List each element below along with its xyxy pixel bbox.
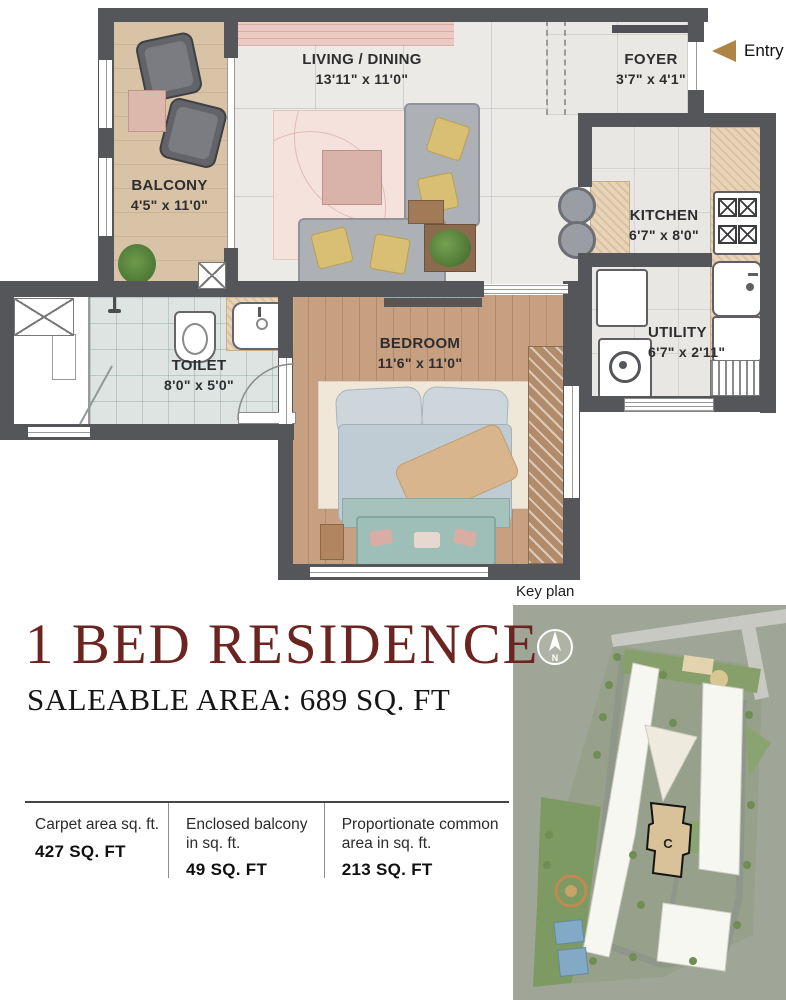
wall — [0, 281, 14, 440]
window — [28, 427, 90, 437]
duct-box — [198, 262, 226, 289]
area-value: 49 SQ. FT — [186, 860, 316, 880]
wall — [578, 267, 592, 410]
room-label-living: LIVING / DINING 13'11" x 11'0" — [262, 50, 462, 88]
room-dims: 6'7" x 2'11" — [648, 343, 748, 361]
room-name: TOILET — [140, 356, 258, 376]
bed-bench — [356, 516, 496, 566]
toilet-door-opening — [279, 358, 292, 424]
entry-label: Entry — [744, 41, 784, 61]
site-map: C N — [513, 605, 786, 1000]
wall — [578, 113, 776, 127]
room-label-kitchen: KITCHEN 6'7" x 8'0" — [606, 206, 722, 244]
room-dims: 3'7" x 4'1" — [592, 70, 710, 88]
floor-plan-page: LIVING / DINING 13'11" x 11'0" FOYER 3'7… — [0, 0, 786, 1000]
wall — [278, 281, 293, 580]
side-table — [408, 200, 444, 224]
area-col-common: Proportionate common area in sq. ft. 213… — [324, 803, 509, 878]
room-dims: 4'5" x 11'0" — [112, 196, 227, 214]
room-label-toilet: TOILET 8'0" x 5'0" — [140, 356, 258, 394]
area-col-balcony: Enclosed balcony in sq. ft. 49 SQ. FT — [168, 803, 324, 878]
wall — [224, 8, 238, 58]
wall — [578, 127, 592, 187]
room-label-foyer: FOYER 3'7" x 4'1" — [592, 50, 710, 88]
page-title: 1 BED RESIDENCE — [25, 612, 540, 677]
duct-shaft-arm — [52, 334, 76, 380]
area-value: 213 SQ. FT — [342, 860, 501, 880]
entry-arrow-icon — [712, 40, 736, 62]
highlighted-building-label: C — [663, 836, 673, 851]
room-dims: 13'11" x 11'0" — [262, 70, 462, 88]
window — [99, 158, 112, 236]
shoe-cabinet — [612, 25, 688, 33]
room-name: BEDROOM — [336, 334, 504, 354]
stool — [558, 187, 596, 225]
saleable-area-subtitle: SALEABLE AREA: 689 SQ. FT — [27, 682, 450, 718]
living-deck-strip — [238, 22, 454, 46]
area-col-carpet: Carpet area sq. ft. 427 SQ. FT — [25, 803, 168, 878]
window — [99, 60, 112, 128]
wardrobe — [528, 346, 565, 564]
tv-console — [384, 298, 482, 307]
window — [310, 567, 488, 577]
balcony-sliding-door — [227, 58, 235, 248]
room-label-bedroom: BEDROOM 11'6" x 11'0" — [336, 334, 504, 372]
plant-icon — [118, 244, 156, 284]
wall — [0, 281, 484, 297]
room-name: KITCHEN — [606, 206, 722, 226]
bedside-table — [320, 524, 344, 560]
duct-shaft — [14, 298, 74, 336]
area-value: 427 SQ. FT — [35, 842, 160, 862]
wall — [98, 8, 114, 293]
shaft-partition — [88, 295, 90, 428]
utility-grill — [710, 360, 760, 396]
key-plan-label: Key plan — [516, 583, 574, 600]
compass-icon: N — [538, 630, 572, 664]
area-summary-table: Carpet area sq. ft. 427 SQ. FT Enclosed … — [25, 801, 509, 878]
entry-indicator: Entry — [712, 40, 784, 62]
room-name: BALCONY — [112, 176, 227, 196]
balcony-table — [128, 90, 166, 132]
area-label: Proportionate common area in sq. ft. — [342, 816, 501, 853]
utility-cabinet — [596, 269, 648, 327]
floor-plan: LIVING / DINING 13'11" x 11'0" FOYER 3'7… — [0, 0, 786, 600]
compass-north-label: N — [552, 653, 559, 663]
kitchen-sink-icon — [712, 261, 762, 317]
room-dims: 6'7" x 8'0" — [606, 226, 722, 244]
shower-icon — [106, 297, 122, 317]
area-label: Enclosed balcony in sq. ft. — [186, 816, 316, 853]
planter-box — [424, 224, 476, 272]
bedroom-sliding-door — [484, 284, 568, 294]
area-label: Carpet area sq. ft. — [35, 816, 160, 835]
wall — [760, 127, 776, 413]
foyer-divider-dashed — [546, 20, 548, 115]
room-label-utility: UTILITY 6'7" x 2'11" — [648, 323, 748, 361]
washing-machine-icon — [598, 338, 652, 399]
room-name: LIVING / DINING — [262, 50, 462, 70]
wall — [688, 8, 704, 42]
utility-steps — [624, 398, 714, 412]
wall — [98, 8, 708, 22]
room-dims: 8'0" x 5'0" — [140, 376, 258, 394]
room-dims: 11'6" x 11'0" — [336, 354, 504, 372]
coffee-table — [322, 150, 382, 205]
window — [564, 386, 579, 498]
room-name: FOYER — [592, 50, 710, 70]
room-label-balcony: BALCONY 4'5" x 11'0" — [112, 176, 227, 214]
room-name: UTILITY — [648, 323, 748, 343]
wall — [578, 253, 712, 267]
foyer-divider-dashed — [564, 20, 566, 115]
key-plan: C N — [513, 605, 786, 1000]
